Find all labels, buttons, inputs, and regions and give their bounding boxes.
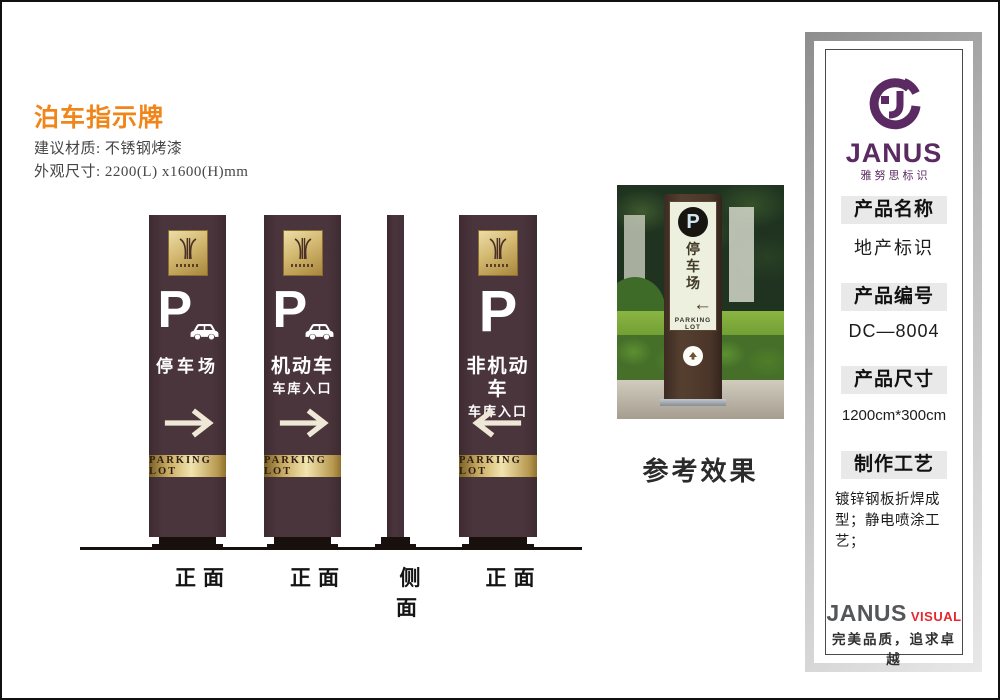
photo-logo-badge [683,346,703,366]
sidebar-panel: JANUS 雅努思标识 产品名称 地产标识 产品编号 DC—8004 产品尺寸 … [814,41,973,663]
sign-line1: 停车场 [149,355,226,378]
view-label-front-2: 正面 [276,562,353,592]
spec-sheet-page: 泊车指示牌 建议材质: 不锈钢烤漆 外观尺寸: 2200(L) x1600(H)… [0,0,1000,700]
direction-arrow [149,405,226,441]
section-header-product-name: 产品名称 [841,196,947,224]
section-header-product-code: 产品编号 [841,283,947,311]
arrow-left-icon [471,407,525,439]
photo-building-right [729,207,754,302]
direction-arrow [459,405,537,441]
footer-brand-suffix: VISUAL [911,609,962,624]
emblem-caption-marks [291,264,315,267]
section-header-craft: 制作工艺 [841,451,947,479]
section-header-product-size: 产品尺寸 [841,366,947,394]
photo-band-label: PARKING LOT [669,317,717,331]
brand-subtitle: 雅努思标识 [826,167,962,183]
sign-line1: 非机动车 [459,355,537,401]
gold-band: PARKING LOT [149,455,226,477]
gold-emblem-plaque [283,230,323,276]
photo-char: 车 [669,258,717,275]
photo-char: 场 [669,275,717,292]
photo-sign-base [660,399,726,406]
arrow-right-icon [161,407,215,439]
footer-brand-lockup: JANUSVISUAL [826,600,962,627]
p-letter: P [273,281,308,339]
photo-p-letter: P [686,211,699,234]
material-spec: 建议材质: 不锈钢烤漆 [34,137,182,158]
photo-sign-pillar: P 停 车 场 ← PARKING LOT [664,194,722,406]
reference-photo: P 停 车 场 ← PARKING LOT [617,185,784,419]
sign-line1: 机动车 [264,355,341,378]
gold-band: PARKING LOT [264,455,341,477]
view-label-front-3: 正面 [471,562,549,592]
product-code-value: DC—8004 [826,321,962,342]
ground-line [80,547,582,550]
gold-emblem-plaque [168,230,208,276]
sign-side-view [387,215,404,537]
photo-parking-circle: P [678,207,708,237]
p-letter: P [468,281,528,343]
footer-brand: JANUS [826,600,906,626]
janus-logo-icon [865,76,923,134]
sign-text: 停车场 [149,355,226,378]
parking-symbol: P [158,281,218,345]
arrow-right-icon [276,407,330,439]
gold-band: PARKING LOT [459,455,537,477]
car-icon [304,321,335,342]
sign-front-view-1: P 停车场 PARKING LOT [149,215,226,537]
sign-front-view-2: P 机动车 车库入口 PARKING LOT [264,215,341,537]
sidebar-frame: JANUS 雅努思标识 产品名称 地产标识 产品编号 DC—8004 产品尺寸 … [805,32,982,672]
sign-line2: 车库入口 [264,380,341,397]
product-size-value: 1200cm*300cm [826,407,962,424]
car-icon [189,321,220,342]
p-letter: P [158,281,193,339]
parking-symbol: P [273,281,333,345]
estate-logo-icon [175,236,201,262]
band-label: PARKING LOT [459,455,537,477]
page-title: 泊车指示牌 [34,98,164,134]
footer-slogan: 完美品质，追求卓越 [826,628,962,668]
photo-caption: 参考效果 [617,451,784,488]
band-label: PARKING LOT [149,455,226,477]
band-label: PARKING LOT [264,455,341,477]
photo-sign-panel: P 停 车 场 ← PARKING LOT [669,201,717,331]
parking-symbol: P [468,281,528,345]
sign-front-view-3: P 非机动车 车库入口 PARKING LOT [459,215,537,537]
product-name-value: 地产标识 [826,234,962,260]
view-label-side: 侧面 [380,562,440,622]
photo-arrow-left-icon: ← [693,295,712,314]
sidebar-inner-box: JANUS 雅努思标识 产品名称 地产标识 产品编号 DC—8004 产品尺寸 … [825,49,963,655]
sign-text: 机动车 车库入口 [264,355,341,397]
estate-logo-icon [485,236,511,262]
photo-char: 停 [669,241,717,258]
gold-emblem-plaque [478,230,518,276]
brand-name: JANUS [826,138,962,169]
view-label-front-1: 正面 [161,562,238,592]
dimension-spec: 外观尺寸: 2200(L) x1600(H)mm [34,160,248,181]
photo-vertical-text: 停 车 场 [669,241,717,292]
craft-value: 镀锌钢板折焊成型；静电喷涂工艺； [835,490,953,553]
emblem-caption-marks [486,264,510,267]
estate-logo-icon [290,236,316,262]
photo-logo-icon [687,351,699,361]
emblem-caption-marks [176,264,200,267]
direction-arrow [264,405,341,441]
